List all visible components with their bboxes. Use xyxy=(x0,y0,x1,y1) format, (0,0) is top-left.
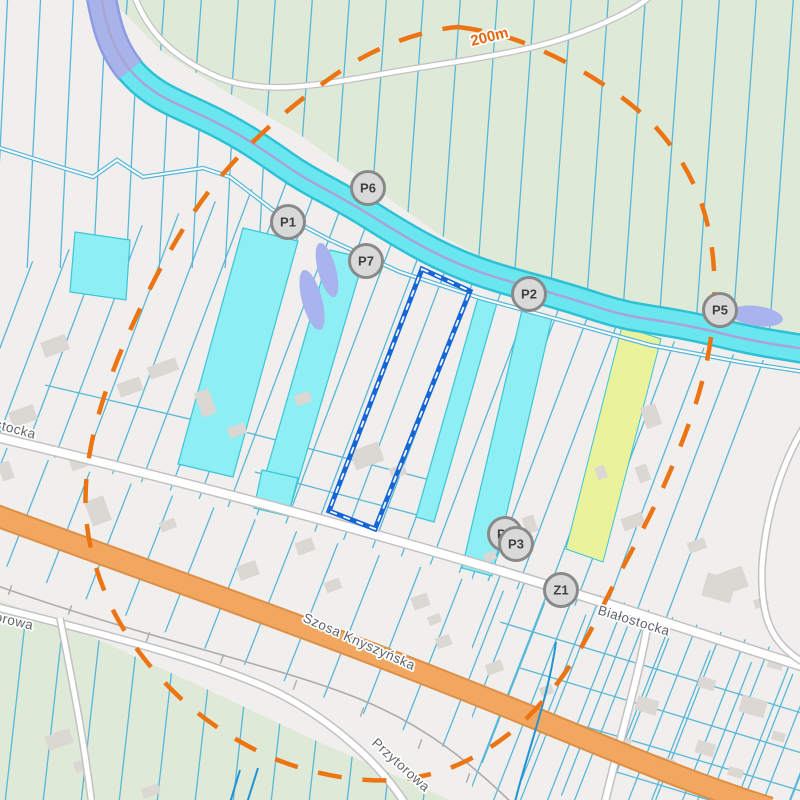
marker-P3[interactable]: P3 xyxy=(500,528,533,561)
marker-label: P2 xyxy=(521,287,537,302)
marker-P7[interactable]: P7 xyxy=(350,245,383,278)
marker-label: P6 xyxy=(360,181,376,196)
marker-P2[interactable]: P2 xyxy=(513,278,546,311)
road-right-loop xyxy=(762,424,800,664)
map-svg-layer: stockaBiałostockaSzosa KnyszyńskaorowaPr… xyxy=(0,0,800,800)
marker-label: P3 xyxy=(508,537,524,552)
marker-label: Z1 xyxy=(553,583,568,598)
marker-label: P1 xyxy=(280,215,296,230)
marker-label: P5 xyxy=(712,303,728,318)
marker-label: P7 xyxy=(358,254,374,269)
marker-P1[interactable]: P1 xyxy=(272,206,305,239)
marker-P6[interactable]: P6 xyxy=(352,172,385,205)
map-canvas[interactable]: stockaBiałostockaSzosa KnyszyńskaorowaPr… xyxy=(0,0,800,800)
marker-P5[interactable]: P5 xyxy=(704,294,737,327)
marker-Z1[interactable]: Z1 xyxy=(545,574,578,607)
highlighted-parcel-yellow xyxy=(566,326,661,562)
field-areas xyxy=(0,0,800,800)
